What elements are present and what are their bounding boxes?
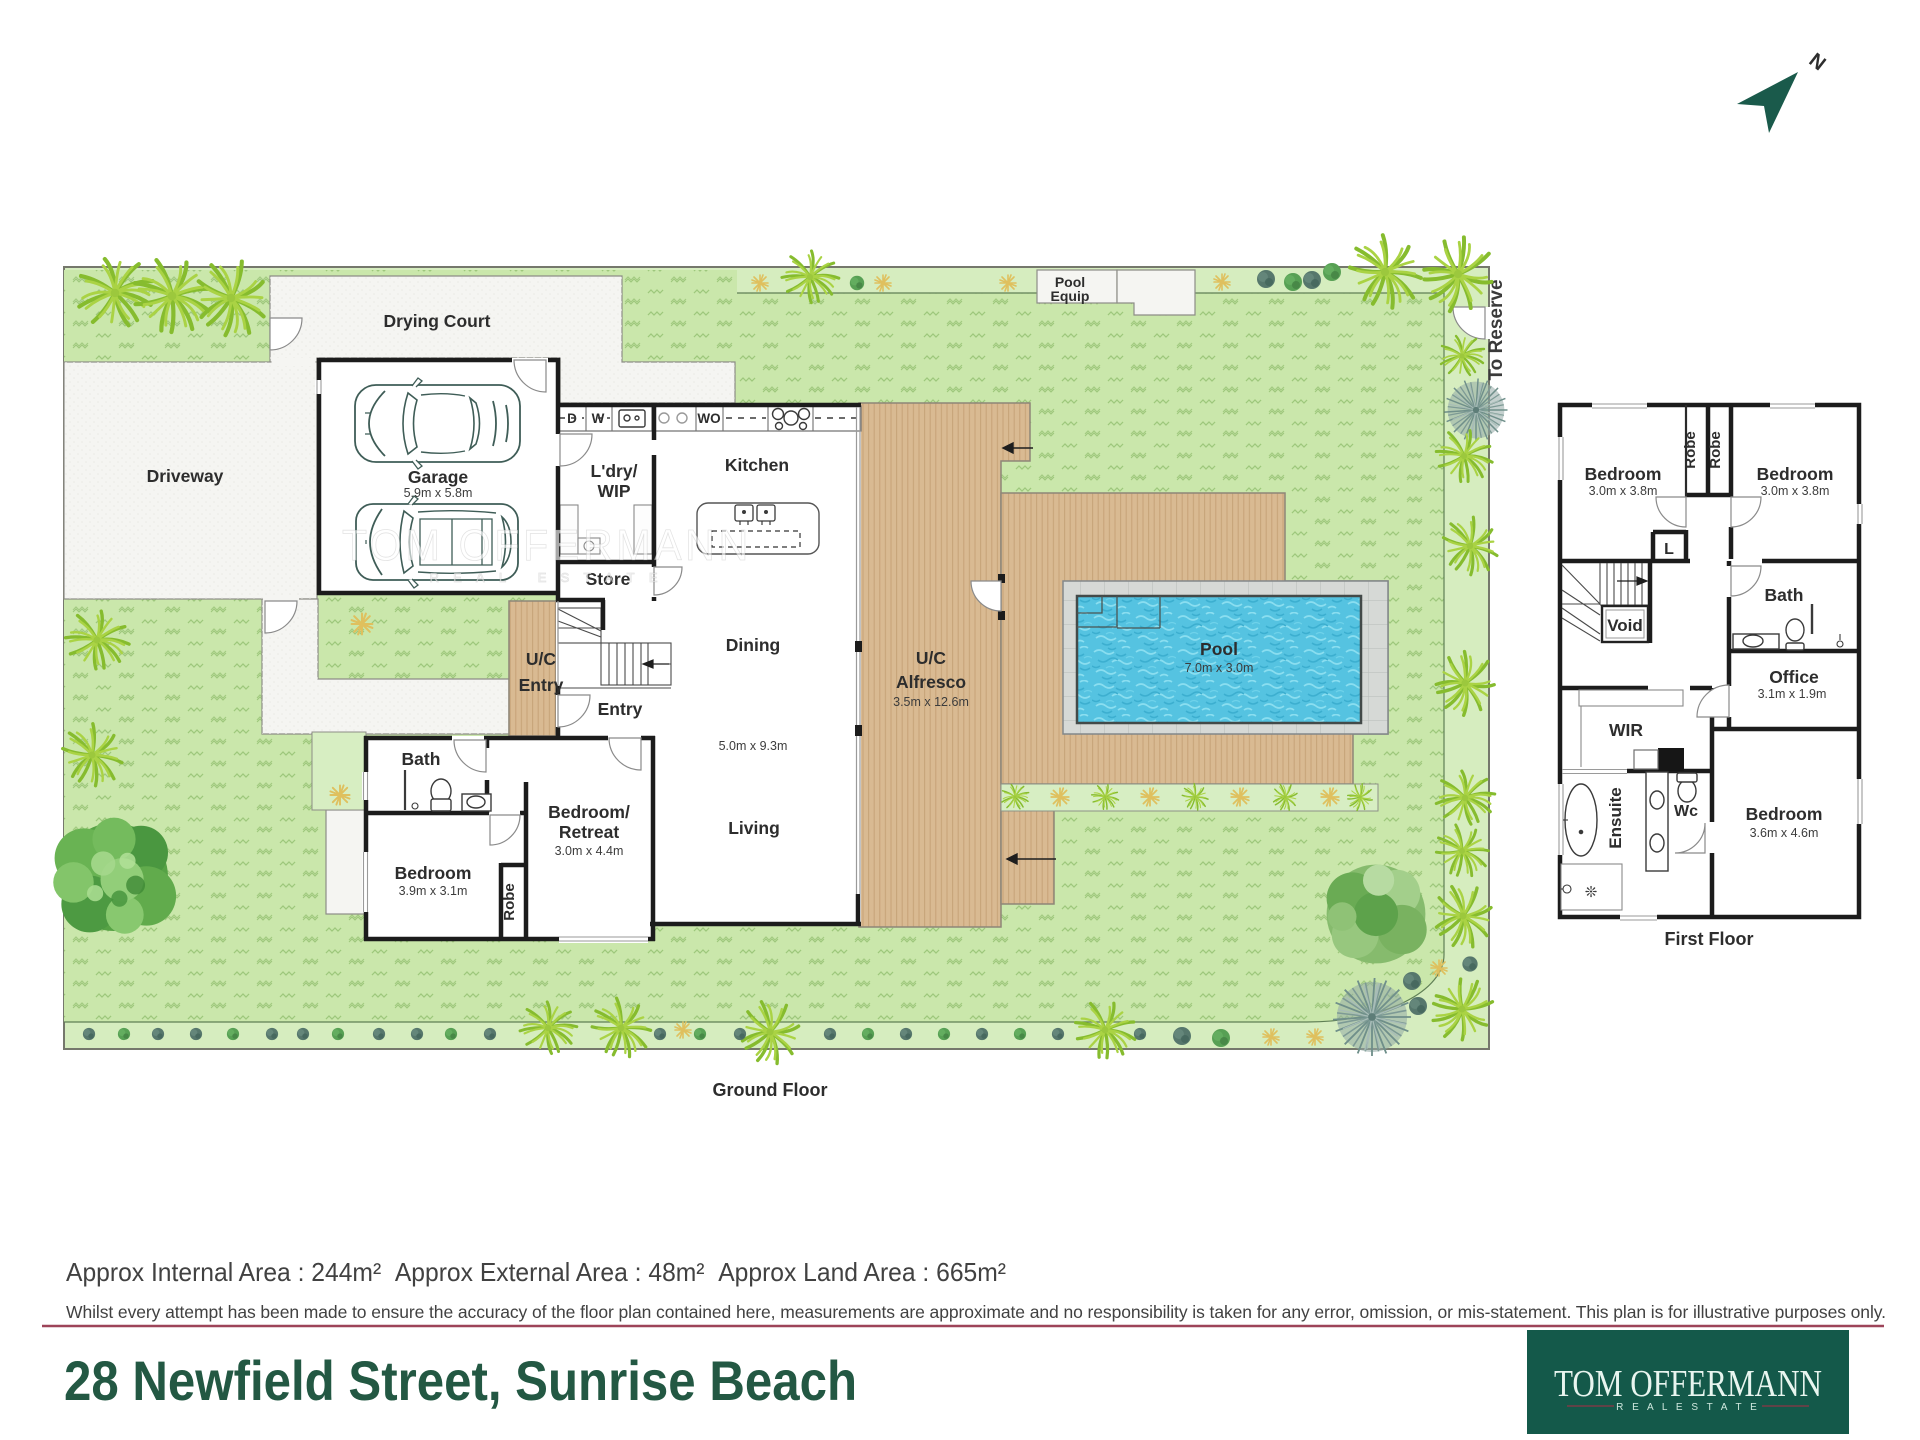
svg-text:Pool: Pool xyxy=(1200,639,1238,659)
svg-text:3.5m x 12.6m: 3.5m x 12.6m xyxy=(893,695,969,709)
svg-text:Approx Internal Area : 244m²: Approx Internal Area : 244m² Approx Exte… xyxy=(66,1257,1006,1287)
svg-text:L: L xyxy=(1664,541,1674,558)
svg-text:Entry: Entry xyxy=(519,675,564,695)
svg-text:Equip: Equip xyxy=(1051,288,1090,304)
svg-text:Robe: Robe xyxy=(1707,431,1724,469)
svg-text:Bedroom: Bedroom xyxy=(1585,464,1662,484)
svg-text:3.0m x 4.4m: 3.0m x 4.4m xyxy=(555,844,624,858)
svg-text:3.0m x 3.8m: 3.0m x 3.8m xyxy=(1589,484,1658,498)
svg-text:Void: Void xyxy=(1607,616,1643,635)
svg-text:Kitchen: Kitchen xyxy=(725,455,789,475)
svg-text:Alfresco: Alfresco xyxy=(896,672,966,692)
svg-text:TOM OFFERMANN: TOM OFFERMANN xyxy=(342,521,752,570)
svg-text:Entry: Entry xyxy=(598,699,643,719)
svg-text:Bedroom: Bedroom xyxy=(1757,464,1834,484)
svg-text:3.0m x 3.8m: 3.0m x 3.8m xyxy=(1761,484,1830,498)
svg-text:3.1m x 1.9m: 3.1m x 1.9m xyxy=(1758,687,1827,701)
svg-text:U/C: U/C xyxy=(526,649,557,669)
svg-text:Garage: Garage xyxy=(408,467,469,487)
svg-text:Dining: Dining xyxy=(726,635,780,655)
svg-text:7.0m x 3.0m: 7.0m x 3.0m xyxy=(1185,661,1254,675)
svg-text:R E A L E S T A T E: R E A L E S T A T E xyxy=(1616,1402,1760,1413)
svg-text:Drying Court: Drying Court xyxy=(384,311,491,331)
svg-text:TOM OFFERMANN: TOM OFFERMANN xyxy=(1554,1363,1822,1405)
svg-text:3.9m x 3.1m: 3.9m x 3.1m xyxy=(399,884,468,898)
svg-text:To Reserve: To Reserve xyxy=(1486,279,1507,380)
svg-text:Office: Office xyxy=(1769,667,1819,687)
svg-text:First Floor: First Floor xyxy=(1665,929,1754,949)
svg-text:WO: WO xyxy=(697,411,720,426)
svg-text:WIP: WIP xyxy=(597,481,630,501)
svg-text:Bedroom: Bedroom xyxy=(395,863,472,883)
svg-text:Robe: Robe xyxy=(1682,431,1699,469)
svg-text:Ground Floor: Ground Floor xyxy=(713,1080,828,1100)
svg-text:3.6m x 4.6m: 3.6m x 4.6m xyxy=(1750,826,1819,840)
svg-text:Bedroom: Bedroom xyxy=(1746,804,1823,824)
svg-text:Robe: Robe xyxy=(501,883,518,921)
svg-text:WIR: WIR xyxy=(1609,720,1643,740)
svg-text:Bedroom/: Bedroom/ xyxy=(548,802,630,822)
svg-text:REAL ESTATE: REAL ESTATE xyxy=(430,570,665,585)
svg-text:Living: Living xyxy=(728,818,780,838)
svg-text:N: N xyxy=(1805,49,1830,75)
svg-text:Wc: Wc xyxy=(1674,803,1698,820)
svg-text:Driveway: Driveway xyxy=(147,466,224,486)
svg-text:28 Newfield Street, Sunrise Be: 28 Newfield Street, Sunrise Beach xyxy=(64,1349,857,1412)
svg-text:5.0m x 9.3m: 5.0m x 9.3m xyxy=(719,739,788,753)
svg-text:Bath: Bath xyxy=(402,749,441,769)
svg-text:Whilst every attempt has been: Whilst every attempt has been made to en… xyxy=(66,1302,1886,1322)
svg-text:Ensuite: Ensuite xyxy=(1606,787,1625,848)
svg-text:❊: ❊ xyxy=(1585,884,1598,901)
svg-text:Retreat: Retreat xyxy=(559,822,619,842)
svg-text:L'dry/: L'dry/ xyxy=(591,461,638,481)
svg-text:5.9m x 5.8m: 5.9m x 5.8m xyxy=(404,486,473,500)
svg-text:U/C: U/C xyxy=(916,648,947,668)
svg-text:Bath: Bath xyxy=(1765,585,1804,605)
